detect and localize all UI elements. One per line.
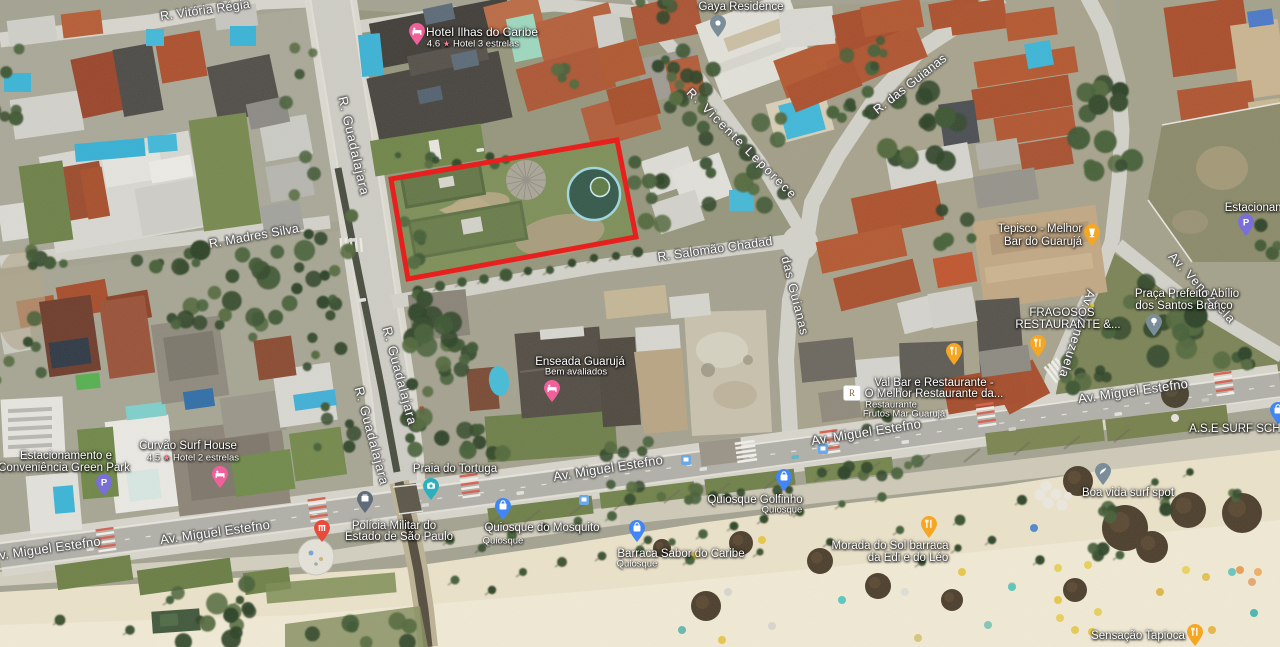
- svg-text:P: P: [101, 478, 108, 489]
- svg-text:R: R: [849, 388, 855, 398]
- svg-text:P: P: [1243, 218, 1250, 229]
